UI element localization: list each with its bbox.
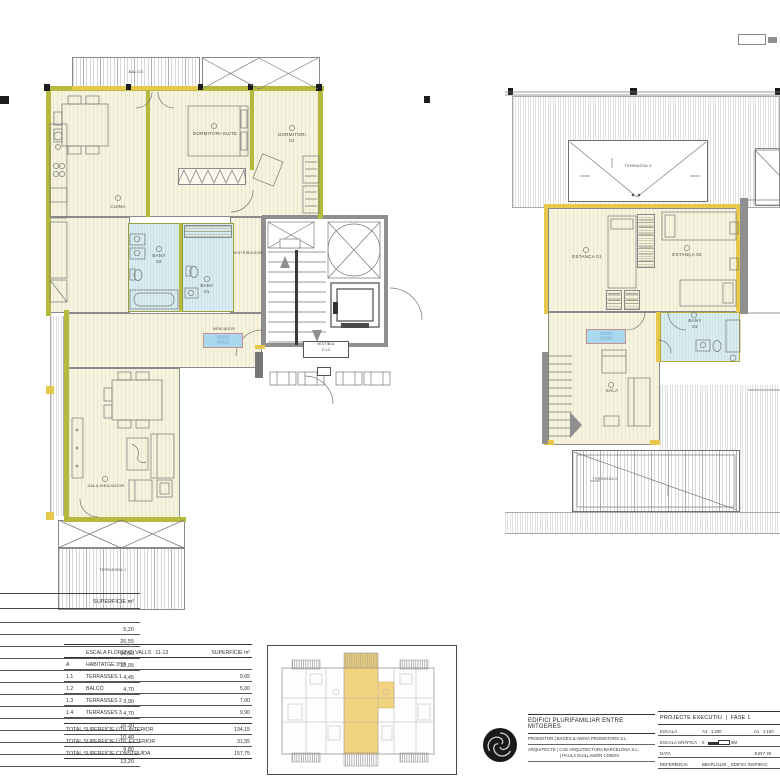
room-label-balco: BALCÓ xyxy=(106,69,166,74)
item-code: 1.4 xyxy=(64,710,86,716)
title-block-right: PROJECTE EXECUTIU | FASE 1 ESCALA A3 1:2… xyxy=(658,711,780,769)
arquitecte-value: | C4G ARQUITECTURA BARCELONA S.L. xyxy=(557,747,639,752)
summary-header-left: ESCALA FLORENCI VALLS 11-13 xyxy=(86,650,211,656)
escala-grafica-row: ESCALA GRÀFICA 0 5M xyxy=(658,736,780,747)
promotor-label: PROMOTOR xyxy=(528,736,553,741)
studio-logo xyxy=(480,725,520,765)
surface-value: 5,20 xyxy=(123,627,134,633)
summary-table: ESCALA FLORENCI VALLS 11-13 SUPERFÍCIE m… xyxy=(64,644,252,759)
title-block-left: EDIFICI PLURIFAMILIAR ENTRE MITGERES PRO… xyxy=(528,714,655,762)
elevator-linework xyxy=(331,283,379,327)
arrows-fills xyxy=(280,194,640,438)
data-row: DATA JUNY 20 xyxy=(658,747,780,758)
data-value: JUNY 20 xyxy=(754,751,771,756)
room-label-distribuidor: DISTRIBUIDOR xyxy=(226,251,270,256)
section-code: A xyxy=(64,662,86,668)
room-number-badges xyxy=(102,123,696,481)
summary-item-row: 1.4 TERRASSES 3 9,90 xyxy=(64,706,252,718)
escala-grafica-label: ESCALA GRÀFICA xyxy=(660,740,697,745)
item-label: TERRASSES 2 xyxy=(86,698,240,704)
project-title: EDIFICI PLURIFAMILIAR ENTRE MITGERES xyxy=(528,715,655,733)
area-annotation-chip: ░░░░░░ ░░░░░░ xyxy=(586,329,626,344)
room-label-menjador: MENJADOR xyxy=(205,327,243,332)
door-tag xyxy=(317,367,331,376)
item-value: 9,65 xyxy=(240,674,252,680)
summary-header: ESCALA FLORENCI VALLS 11-13 SUPERFÍCIE m… xyxy=(64,644,252,658)
summary-total-row: TOTAL SUPERFÍCIE ÚTIL INTERIOR 134,15 xyxy=(64,723,252,735)
total-label: TOTAL SUPERFÍCIE ÚTIL INTERIOR xyxy=(64,727,234,733)
item-value: 9,90 xyxy=(240,710,252,716)
room-label-cuina: CUINA xyxy=(98,204,138,210)
item-value: 7,00 xyxy=(240,698,252,704)
item-label: TERRASSES 3 xyxy=(86,710,240,716)
room-label-estanca-02: ESTANÇA 02 xyxy=(672,252,702,258)
escala-a3: A3 1:200 xyxy=(702,729,722,734)
summary-item-row: 1.1 TERRASSES 1 9,65 xyxy=(64,670,252,682)
right-plan-linework xyxy=(505,92,780,510)
scale-bar-dark xyxy=(708,742,718,745)
summary-header-right: SUPERFÍCIE m² xyxy=(211,650,252,656)
referencia-value: BBAPL/1120 _ EDIFICI INSPIRAC xyxy=(702,762,768,767)
item-code: 1.3 xyxy=(64,698,86,704)
room-label-bany-03: BANY 03 xyxy=(687,318,703,330)
surface-value: 13,20 xyxy=(120,759,134,765)
summary-total-row: TOTAL SUPERFÍCIE CONSTRUÏDA 157,75 xyxy=(64,747,252,759)
total-value: 157,75 xyxy=(234,751,252,757)
data-label: DATA xyxy=(660,751,671,756)
drawing-sheet: BALCÓ CUINA DORMITORI-SUITE DORMITORI 01… xyxy=(0,0,780,780)
area-annotation-chip: ░░░░░░ ░░░░░░ xyxy=(203,333,243,348)
phase-title: PROJECTE EXECUTIU | FASE 1 xyxy=(658,711,780,725)
vestibul-number: P-13 xyxy=(304,348,348,354)
surface-table-header: SUPERFÍCIE m² xyxy=(0,593,140,609)
room-label-terrassa-1: TERRASSA 1 xyxy=(88,567,138,572)
key-plan-drawing xyxy=(268,646,455,773)
promotor-row: PROMOTOR | BAGES & ANOIA PROMOTORS S.L. xyxy=(528,734,655,744)
arquitecte-row2: | PAULA GUILLAMÓN COBOS xyxy=(528,752,655,761)
surface-table-row: 5,20 xyxy=(0,623,140,635)
escala-label: ESCALA xyxy=(660,729,677,734)
surface-table-spacer xyxy=(0,609,140,623)
summary-item-row: 1.3 TERRASSES 2 7,00 xyxy=(64,694,252,706)
total-label: TOTAL SUPERFÍCIE ÚTIL EXTERIOR xyxy=(64,739,237,745)
room-label-dormitori-suite: DORMITORI-SUITE xyxy=(183,131,247,137)
item-label: BALCÓ xyxy=(86,686,240,692)
item-value: 5,00 xyxy=(240,686,252,692)
summary-item-row: 1.2 BALCÓ 5,00 xyxy=(64,682,252,694)
room-label-estanca-01: ESTANÇA 01 xyxy=(572,254,602,260)
total-value: 31,55 xyxy=(237,739,252,745)
room-label-bany-02: BANY 02 xyxy=(151,253,167,265)
room-label-terrassa-2: TERRASSA 2 xyxy=(584,477,626,482)
total-value: 134,15 xyxy=(234,727,252,733)
room-label-sala-menjador: SALA-MENJADOR xyxy=(78,483,134,488)
rule xyxy=(528,761,655,762)
room-label-bany-01: BANY 01 xyxy=(199,283,215,295)
item-code: 1.1 xyxy=(64,674,86,680)
item-label: TERRASSES 1 xyxy=(86,674,240,680)
chip-line: ░░░░░░ xyxy=(587,336,625,341)
room-label-terrassa-3: TERRASSA 3 xyxy=(616,163,660,168)
referencia-label: REFERÈNCIA xyxy=(660,762,688,767)
dark-fills xyxy=(255,250,369,378)
escala-a1: A1 1:100 xyxy=(754,729,774,734)
section-label: HABITATGE 3º2ª xyxy=(86,662,252,668)
arquitecte-label: ARQUITECTE xyxy=(528,747,556,752)
arquitecte-row: ARQUITECTE | C4G ARQUITECTURA BARCELONA … xyxy=(528,745,655,753)
summary-total-row: TOTAL SUPERFÍCIE ÚTIL EXTERIOR 31,55 xyxy=(64,735,252,747)
arquitecte-value2: | PAULA GUILLAMÓN COBOS xyxy=(560,753,619,758)
promotor-value: | BAGES & ANOIA PROMOTORS S.L. xyxy=(554,736,627,741)
grafica-zero: 0 xyxy=(702,740,704,745)
item-code: 1.2 xyxy=(64,686,86,692)
scale-bar-light xyxy=(718,740,730,745)
vestibul-tag: VESTÍBUL P-13 xyxy=(303,341,349,358)
chip-line: ░░░░░░ xyxy=(204,340,242,345)
escala-row: ESCALA A3 1:200 A1 1:100 xyxy=(658,725,780,736)
room-label-dormitori-01: DORMITORI 01 xyxy=(277,132,307,144)
summary-section-row: A HABITATGE 3º2ª xyxy=(64,658,252,670)
key-plan xyxy=(267,645,457,775)
room-label-sala: SALA xyxy=(599,388,625,394)
grafica-five: 5M xyxy=(731,740,737,745)
referencia-row: REFERÈNCIA BBAPL/1120 _ EDIFICI INSPIRAC xyxy=(658,758,780,769)
total-label: TOTAL SUPERFÍCIE CONSTRUÏDA xyxy=(64,751,234,757)
